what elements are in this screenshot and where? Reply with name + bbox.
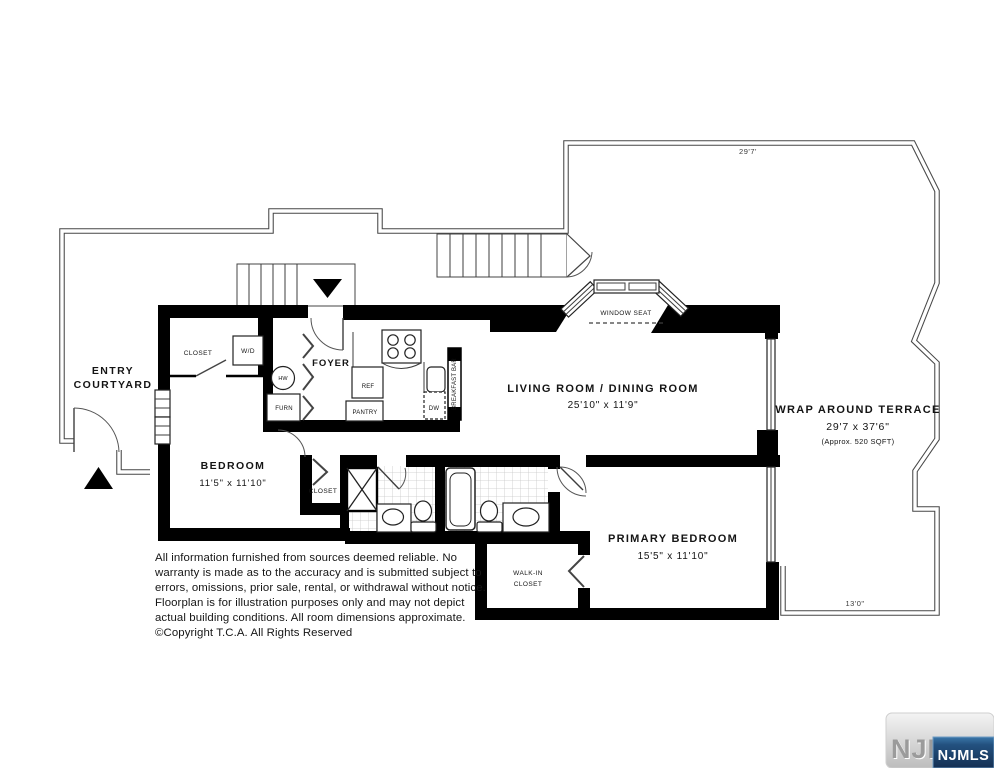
disclaimer-line: warranty is made as to the accuracy and … <box>154 567 482 579</box>
label-terrace-area: (Approx. 520 SQFT) <box>822 437 895 446</box>
refrigerator <box>352 367 383 398</box>
label-walkin-2: CLOSET <box>514 581 542 588</box>
bathroom2-sink <box>503 503 549 532</box>
njmls-badge-text: NJMLS <box>938 748 990 764</box>
label-primary-bedroom-dims: 15'5" x 11'10" <box>638 551 709 562</box>
bathroom2-door-leaf <box>560 467 583 490</box>
bay-window-center <box>594 280 659 293</box>
disclaimer-line: All information furnished from sources d… <box>155 552 457 564</box>
courtyard-entry-door <box>74 408 119 452</box>
terrace-top-dimension: 29'7' <box>739 147 757 156</box>
utility-bifold-doors <box>303 334 313 420</box>
stairs-left <box>237 264 355 306</box>
label-entry-courtyard-2: COURTYARD <box>74 379 153 391</box>
living-room-terrace-window <box>767 339 775 430</box>
shower <box>347 468 377 511</box>
label-terrace: WRAP AROUND TERRACE <box>775 404 940 416</box>
kitchen-sink <box>427 367 445 392</box>
label-walkin-1: WALK-IN <box>513 570 543 577</box>
label-breakfast-bar: BREAKFAST BAR <box>452 358 458 410</box>
label-bedroom: BEDROOM <box>201 460 266 472</box>
stairs-direction-arrow <box>567 234 590 277</box>
bathroom1-sink <box>377 504 411 532</box>
label-living-dining-dims: 25'10" x 11'9" <box>568 400 639 411</box>
disclaimer-line: ©Copyright T.C.A. All Rights Reserved <box>155 627 352 639</box>
primary-bedroom-door-arc <box>557 467 586 496</box>
disclaimer-line: actual building conditions. All room dim… <box>155 612 466 624</box>
label-wd: W/D <box>241 348 255 355</box>
label-foyer: FOYER <box>312 358 350 369</box>
disclaimer-line: errors, omissions, prior sale, rental, o… <box>155 582 486 594</box>
disclaimer-text: All information furnished from sources d… <box>154 552 486 639</box>
label-furn: FURN <box>275 406 292 412</box>
bedroom-door-arc <box>278 430 305 457</box>
walkin-closet-door <box>569 556 584 587</box>
hall-closet-door <box>313 459 327 485</box>
label-ref: REF <box>362 384 375 390</box>
bathtub <box>446 468 475 530</box>
terrace-bottom-dimension: 13'0" <box>845 599 864 608</box>
stairs-right <box>437 234 592 277</box>
njmls-logo: NJMLS NJMLS NJMLS <box>886 713 994 768</box>
label-terrace-dims: 29'7 x 37'6" <box>826 421 889 433</box>
closet-door-leaf <box>196 360 226 376</box>
label-hall-closet: CLOSET <box>309 488 337 495</box>
label-living-dining: LIVING ROOM / DINING ROOM <box>507 383 698 395</box>
floorplan-canvas: 29'7' 13'0" ENTRY COURTYARD CLOSET W/D F… <box>0 0 994 768</box>
kitchen <box>346 330 461 421</box>
bay-window-left <box>561 282 598 317</box>
label-entry-courtyard-1: ENTRY <box>92 365 134 377</box>
foyer-entry-door <box>311 318 343 350</box>
label-pantry: PANTRY <box>353 410 378 416</box>
primary-bedroom-terrace-window <box>767 467 775 562</box>
label-primary-bedroom: PRIMARY BEDROOM <box>608 533 738 545</box>
label-dw: DW <box>429 406 440 412</box>
floorplan-page: 29'7' 13'0" ENTRY COURTYARD CLOSET W/D F… <box>0 0 994 768</box>
label-window-seat: WINDOW SEAT <box>600 310 651 317</box>
disclaimer-line: Floorplan is for illustration purposes o… <box>155 597 465 609</box>
label-bedroom-dims: 11'5" x 11'10" <box>199 478 266 489</box>
entry-direction-arrow <box>84 467 113 489</box>
bedroom-windows <box>155 390 170 444</box>
label-hw: HW <box>278 376 288 382</box>
label-bedroom-closet: CLOSET <box>184 350 212 357</box>
stove <box>382 330 421 369</box>
